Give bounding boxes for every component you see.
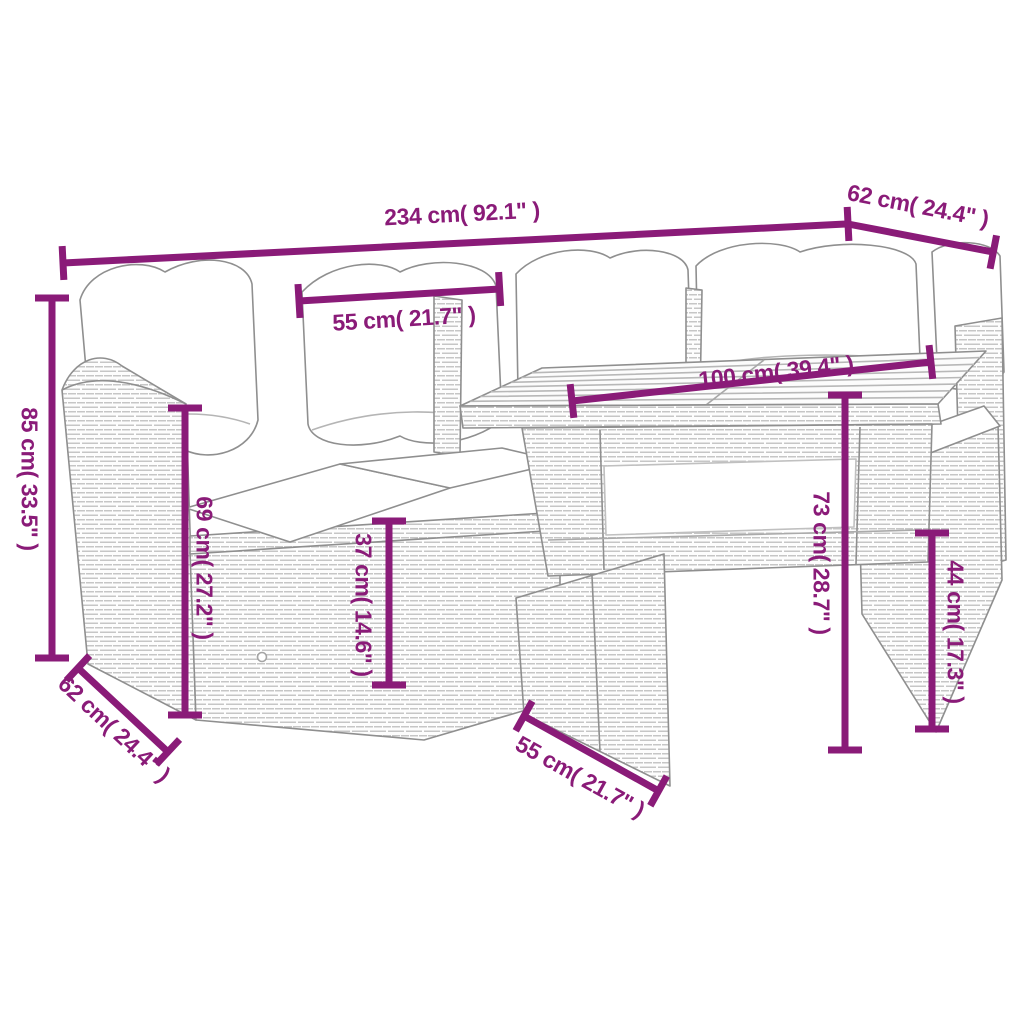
- dim-label-table-height: 73 cm( 28.7" ): [808, 491, 835, 634]
- base-hole: [258, 653, 267, 662]
- dimension-diagram: 234 cm( 92.1" ) 62 cm( 24.4" ) 55 cm( 21…: [0, 0, 1024, 1024]
- dim-label-back-height: 69 cm( 27.2" ): [191, 496, 218, 639]
- dim-label-seat-height: 37 cm( 14.6" ): [350, 533, 377, 676]
- furniture-illustration: [0, 0, 1024, 1024]
- dim-label-total-height: 85 cm( 33.5" ): [16, 407, 43, 550]
- dim-label-stool-height: 44 cm( 17.3" ): [942, 560, 969, 703]
